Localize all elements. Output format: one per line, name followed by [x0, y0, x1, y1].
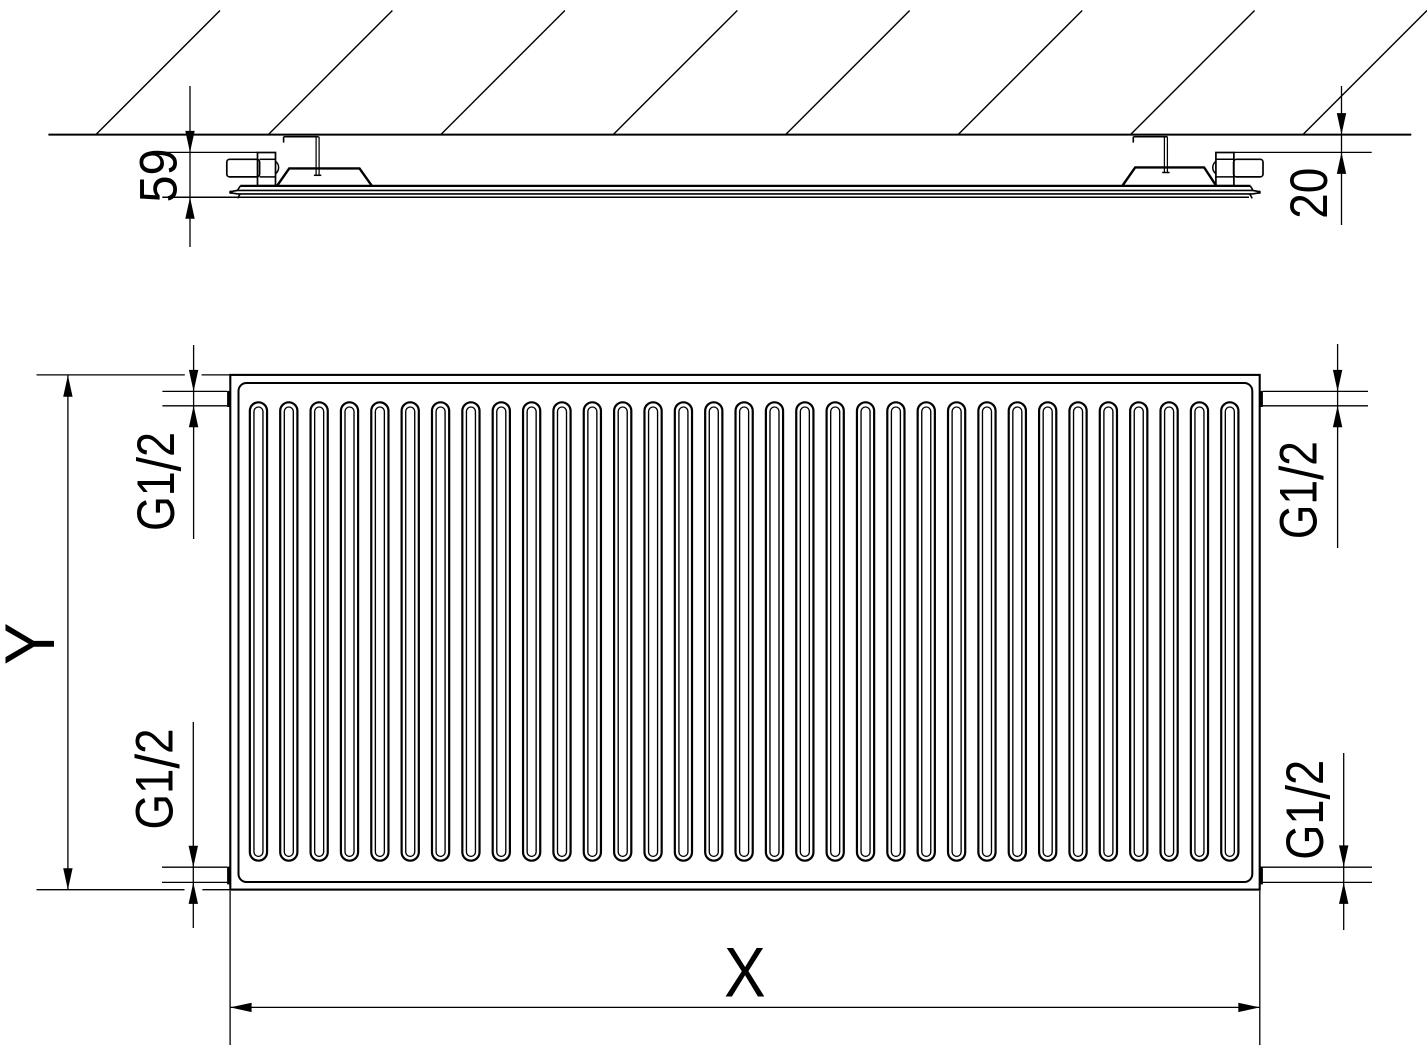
svg-text:G1/2: G1/2: [126, 432, 194, 531]
svg-text:20: 20: [1280, 168, 1339, 219]
svg-text:G1/2: G1/2: [1268, 441, 1336, 539]
svg-text:Y: Y: [0, 623, 69, 665]
svg-text:G1/2: G1/2: [1275, 760, 1343, 860]
svg-text:59: 59: [129, 149, 188, 203]
svg-text:G1/2: G1/2: [124, 729, 192, 830]
svg-text:X: X: [724, 933, 766, 1012]
